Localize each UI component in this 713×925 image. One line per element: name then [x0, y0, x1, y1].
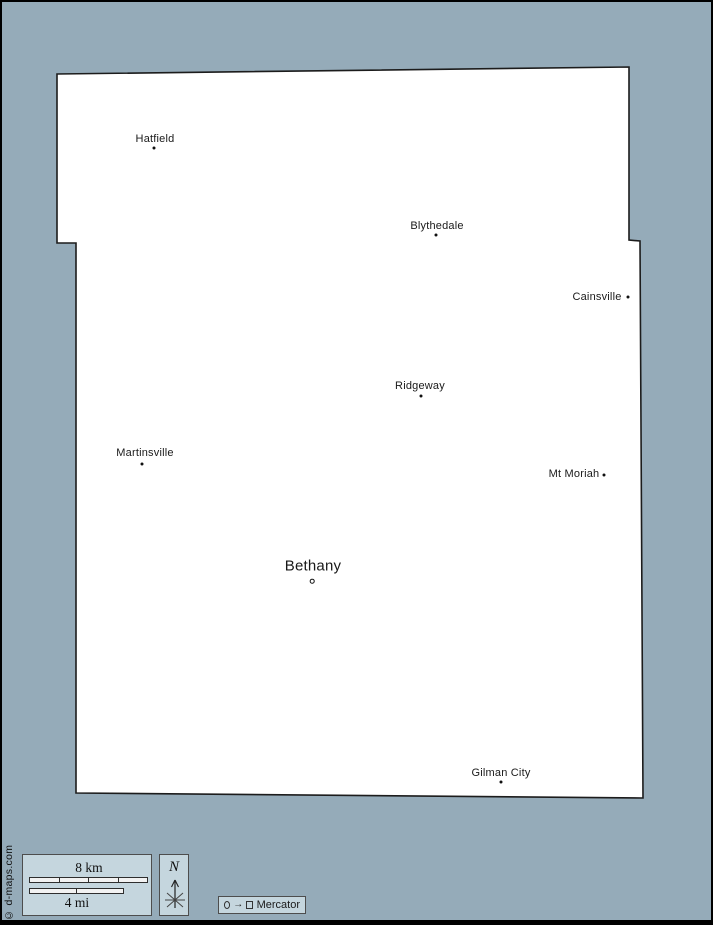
scale-mi-label: 4 mi [65, 895, 89, 911]
scale-bar-segment [88, 877, 119, 883]
town-label-hatfield: Hatfield [136, 133, 175, 145]
town-marker-martinsville [141, 463, 144, 466]
projection-legend: → Mercator [218, 896, 306, 914]
projection-name: Mercator [257, 899, 300, 911]
town-label-martinsville: Martinsville [116, 447, 173, 459]
town-marker-gilman-city [500, 781, 503, 784]
town-marker-cainsville [627, 296, 630, 299]
scale-mi-bar [29, 888, 124, 894]
town-label-ridgeway: Ridgeway [395, 380, 445, 392]
towns-layer: HatfieldBlythedaleCainsvilleRidgewayMart… [0, 0, 713, 925]
north-label: N [160, 859, 188, 876]
map-page: HatfieldBlythedaleCainsvilleRidgewayMart… [0, 0, 713, 925]
town-marker-hatfield [153, 147, 156, 150]
scale-bar-segment [76, 888, 124, 894]
town-label-bethany: Bethany [285, 558, 341, 575]
circle-outline-icon [224, 901, 230, 909]
town-label-mt-moriah: Mt Moriah [549, 468, 600, 480]
town-marker-mt-moriah [603, 474, 606, 477]
county-seat-marker-bethany [310, 579, 315, 584]
compass-needle-icon [160, 875, 190, 915]
town-label-blythedale: Blythedale [410, 220, 463, 232]
scale-bar-panel: 8 km 4 mi [22, 854, 152, 916]
scale-bar-segment [29, 877, 60, 883]
town-marker-blythedale [435, 234, 438, 237]
scale-bar-segment [59, 877, 90, 883]
scale-bar-segment [29, 888, 77, 894]
scale-km-bar [29, 877, 148, 883]
town-label-cainsville: Cainsville [572, 291, 621, 303]
town-marker-ridgeway [420, 395, 423, 398]
scale-bar-segment [118, 877, 149, 883]
town-label-gilman-city: Gilman City [471, 767, 530, 779]
copyright-credit: © d-maps.com [3, 843, 15, 921]
square-outline-icon [246, 901, 252, 909]
right-arrow-icon: → [233, 900, 243, 910]
compass-panel: N [159, 854, 189, 916]
scale-km-label: 8 km [75, 860, 102, 876]
